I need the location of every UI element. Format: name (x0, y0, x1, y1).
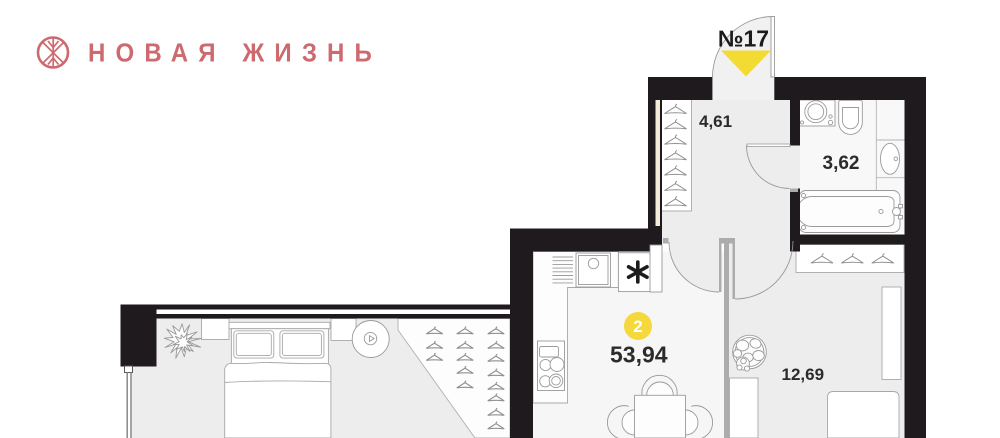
svg-text:НОВАЯ ЖИЗНЬ: НОВАЯ ЖИЗНЬ (88, 38, 382, 68)
svg-text:2: 2 (633, 317, 642, 336)
svg-text:3,62: 3,62 (823, 153, 860, 174)
svg-text:53,94: 53,94 (610, 342, 668, 368)
svg-text:12,69: 12,69 (782, 365, 825, 384)
svg-text:№17: №17 (718, 26, 769, 52)
svg-text:4,61: 4,61 (699, 112, 732, 131)
